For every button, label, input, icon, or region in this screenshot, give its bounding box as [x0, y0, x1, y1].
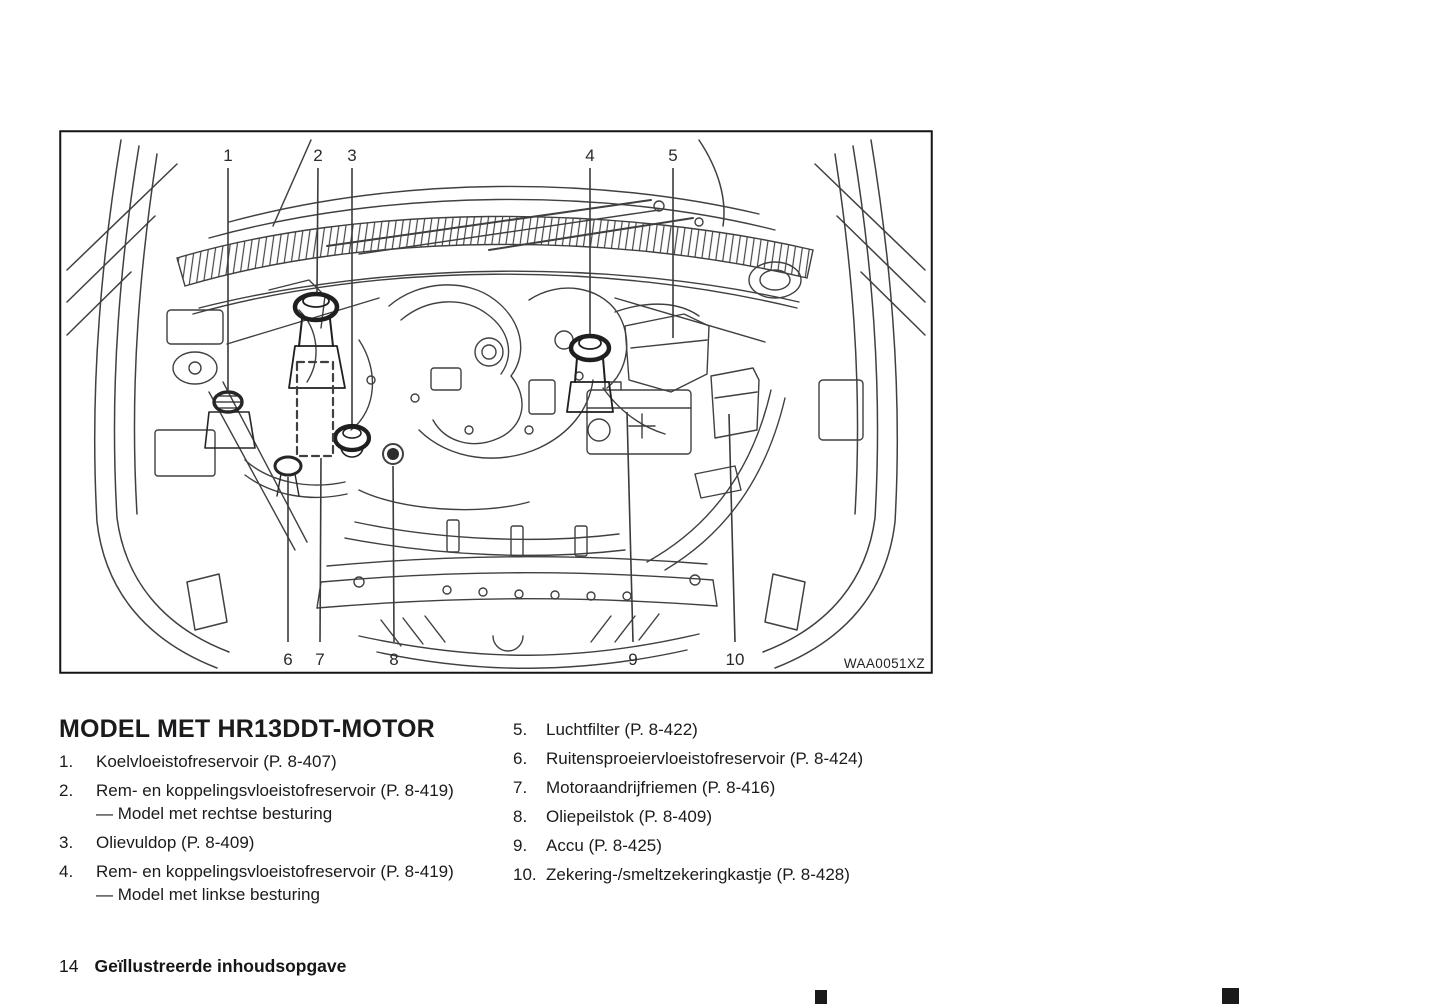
legend-item-text: Accu (P. 8-425): [546, 834, 937, 857]
callout-number-1: 1: [223, 146, 232, 165]
footer-title: Geïllustreerde inhoudsopgave: [94, 956, 346, 976]
legend-item-3: 3. Olievuldop (P. 8-409): [59, 831, 511, 854]
fuse-box: [711, 368, 759, 438]
callout-number-6: 6: [283, 650, 292, 669]
legend-item-text: Luchtfilter (P. 8-422): [546, 718, 937, 741]
legend-item-subtext: — Model met rechtse besturing: [96, 802, 511, 825]
page-footer: 14Geïllustreerde inhoudsopgave: [59, 955, 346, 977]
legend-item-1: 1. Koelvloeistofreservoir (P. 8-407): [59, 750, 511, 773]
legend-item-number: 9.: [513, 834, 546, 857]
drive-belt-dashed-area: [297, 362, 333, 456]
brake-fluid-cap-lhd: [567, 336, 613, 412]
legend-item-subtext: — Model met linkse besturing: [96, 883, 511, 906]
legend-item-text: Rem- en koppelingsvloeistofreservoir (P.…: [96, 779, 511, 802]
callout-number-2: 2: [313, 146, 322, 165]
page-edge-mark: [815, 990, 827, 1004]
section-heading: MODEL MET HR13DDT-MOTOR: [59, 712, 511, 746]
legend-item-number: 6.: [513, 747, 546, 770]
legend-item-8: 8. Oliepeilstok (P. 8-409): [513, 805, 937, 828]
callout-number-7: 7: [315, 650, 324, 669]
figure-border: [60, 131, 932, 673]
callout-number-5: 5: [668, 146, 677, 165]
wiper-pivot: [695, 218, 703, 226]
legend-item-text: Koelvloeistofreservoir (P. 8-407): [96, 750, 511, 773]
callout-number-10: 10: [726, 650, 745, 669]
callout-number-3: 3: [347, 146, 356, 165]
figure-code: WAA0051XZ: [844, 656, 925, 671]
legend-item-text: Ruitensproeiervloeistofreservoir (P. 8-4…: [546, 747, 937, 770]
legend-left-column: MODEL MET HR13DDT-MOTOR 1. Koelvloeistof…: [59, 712, 511, 912]
cowl-grille: [177, 186, 813, 314]
brake-fluid-cap-rhd: [289, 294, 345, 388]
legend-item-number: 8.: [513, 805, 546, 828]
engine-diagram-figure: 1 2 3 4 5 6 7 8 9 10 WAA0051XZ: [59, 130, 933, 674]
legend-item-number: 1.: [59, 750, 96, 773]
callout-number-8: 8: [389, 650, 398, 669]
legend-item-7: 7. Motoraandrijfriemen (P. 8-416): [513, 776, 937, 799]
legend-item-6: 6. Ruitensproeiervloeistofreservoir (P. …: [513, 747, 937, 770]
legend-item-10: 10. Zekering-/smeltzekeringkastje (P. 8-…: [513, 863, 937, 886]
legend-item-text: Motoraandrijfriemen (P. 8-416): [546, 776, 937, 799]
legend-item-5: 5. Luchtfilter (P. 8-422): [513, 718, 937, 741]
legend-item-number: 7.: [513, 776, 546, 799]
battery: [587, 382, 691, 454]
legend-item-number: 2.: [59, 779, 96, 825]
legend-item-2: 2. Rem- en koppelingsvloeistofreservoir …: [59, 779, 511, 825]
callout-number-4: 4: [585, 146, 594, 165]
legend-item-number: 4.: [59, 860, 96, 906]
air-cleaner-box: [625, 314, 709, 392]
legend-item-text: Oliepeilstok (P. 8-409): [546, 805, 937, 828]
legend-item-text: Rem- en koppelingsvloeistofreservoir (P.…: [96, 860, 511, 883]
page-number: 14: [59, 955, 78, 977]
legend-item-number: 10.: [513, 863, 546, 886]
legend-item-9: 9. Accu (P. 8-425): [513, 834, 937, 857]
engine-components: [155, 262, 863, 668]
legend-item-4: 4. Rem- en koppelingsvloeistofreservoir …: [59, 860, 511, 906]
oil-filler-cap: [335, 426, 369, 457]
legend-item-number: 5.: [513, 718, 546, 741]
legend-right-column: 5. Luchtfilter (P. 8-422) 6. Ruitensproe…: [513, 712, 937, 892]
page-edge-mark: [1222, 988, 1239, 1004]
callout-number-9: 9: [628, 650, 637, 669]
oil-dipstick-grommet: [383, 444, 403, 464]
legend-item-text: Olievuldop (P. 8-409): [96, 831, 511, 854]
legend-item-text: Zekering-/smeltzekeringkastje (P. 8-428): [546, 863, 937, 886]
coolant-reservoir-cap: [205, 392, 255, 448]
legend-item-number: 3.: [59, 831, 96, 854]
engine-bay-diagram: 1 2 3 4 5 6 7 8 9 10 WAA0051XZ: [59, 130, 933, 674]
